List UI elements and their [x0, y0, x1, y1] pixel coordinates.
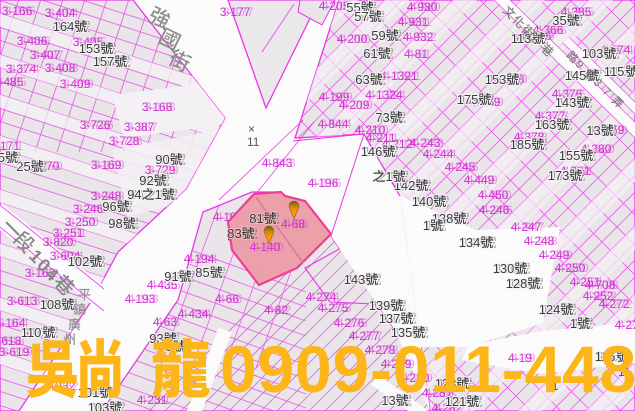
svg-text:73: 73 — [375, 110, 389, 125]
svg-text:81: 81 — [249, 211, 263, 226]
svg-text:11: 11 — [247, 135, 260, 149]
svg-text:4-248: 4-248 — [524, 234, 555, 248]
svg-text:3-169: 3-169 — [91, 158, 122, 172]
svg-text:4-273: 4-273 — [615, 318, 635, 332]
svg-text:3-166: 3-166 — [2, 4, 33, 18]
svg-text:4-246: 4-246 — [479, 203, 510, 217]
svg-text:175: 175 — [457, 92, 479, 107]
svg-text:4-68: 4-68 — [281, 217, 305, 231]
svg-text:4-250: 4-250 — [555, 261, 586, 275]
svg-text:3-485: 3-485 — [0, 75, 24, 89]
svg-text:3-820: 3-820 — [43, 235, 74, 249]
svg-text:4-434: 4-434 — [178, 307, 209, 321]
svg-text:3-387: 3-387 — [124, 120, 155, 134]
svg-text:4-200: 4-200 — [337, 32, 368, 46]
svg-text:115: 115 — [604, 64, 625, 79]
svg-text:4-249: 4-249 — [539, 248, 570, 262]
svg-text:3-177: 3-177 — [220, 5, 251, 19]
svg-text:4-193: 4-193 — [125, 292, 156, 306]
svg-text:4-194: 4-194 — [184, 252, 215, 266]
svg-text:3-406: 3-406 — [17, 34, 48, 48]
svg-text:4-205: 4-205 — [319, 0, 350, 13]
svg-text:103: 103 — [582, 46, 604, 61]
svg-text:4-449: 4-449 — [464, 173, 495, 187]
svg-text:4-140: 4-140 — [250, 240, 281, 254]
svg-text:4-82: 4-82 — [264, 303, 288, 317]
svg-text:3-613: 3-613 — [7, 294, 38, 308]
svg-text:140: 140 — [412, 194, 434, 209]
svg-text:1: 1 — [155, 187, 162, 202]
svg-text:96: 96 — [102, 199, 116, 214]
svg-text:134: 134 — [459, 235, 481, 250]
svg-text:3-374: 3-374 — [6, 62, 37, 76]
svg-text:3-168: 3-168 — [142, 100, 173, 114]
svg-text:4-844: 4-844 — [318, 117, 349, 131]
svg-text:3-246: 3-246 — [73, 202, 104, 216]
svg-text:3-407: 3-407 — [30, 48, 61, 62]
svg-text:4-275: 4-275 — [318, 301, 349, 315]
svg-text:130: 130 — [493, 261, 515, 276]
svg-text:3-726: 3-726 — [80, 118, 111, 132]
svg-text:145: 145 — [565, 68, 587, 83]
svg-text:153: 153 — [485, 72, 507, 87]
svg-text:×: × — [248, 122, 255, 136]
svg-text:102: 102 — [68, 254, 90, 269]
svg-text:4-272: 4-272 — [599, 297, 630, 311]
svg-text:90: 90 — [155, 152, 169, 167]
svg-text:3-618: 3-618 — [0, 334, 22, 348]
svg-text:5: 5 — [0, 150, 5, 165]
svg-text:4-450: 4-450 — [478, 188, 509, 202]
svg-text:157: 157 — [93, 54, 115, 69]
svg-text:4-245: 4-245 — [445, 160, 476, 174]
svg-text:92: 92 — [139, 173, 153, 188]
svg-text:85: 85 — [195, 265, 209, 280]
svg-text:124: 124 — [539, 302, 561, 317]
svg-text:3-409: 3-409 — [60, 77, 91, 91]
svg-text:0909-011-448: 0909-011-448 — [220, 332, 635, 406]
svg-text:91: 91 — [164, 269, 178, 284]
svg-text:4-932: 4-932 — [403, 30, 434, 44]
svg-text:4-196: 4-196 — [308, 176, 339, 190]
svg-text:1: 1 — [423, 218, 430, 233]
svg-text:4-931: 4-931 — [398, 15, 429, 29]
svg-text:4-66: 4-66 — [215, 292, 239, 306]
svg-text:128: 128 — [506, 276, 528, 291]
svg-text:110: 110 — [21, 325, 42, 340]
svg-text:4-63: 4-63 — [153, 315, 177, 329]
svg-text:155: 155 — [559, 148, 581, 163]
svg-text:137: 137 — [379, 311, 401, 326]
svg-text:57: 57 — [354, 9, 368, 24]
svg-text:1: 1 — [385, 169, 392, 184]
svg-text:4-930: 4-930 — [407, 0, 438, 14]
svg-text:4-276: 4-276 — [334, 316, 365, 330]
svg-text:4-209: 4-209 — [339, 98, 370, 112]
svg-text:4-231: 4-231 — [137, 393, 168, 407]
svg-text:61: 61 — [363, 46, 377, 61]
svg-text:108: 108 — [40, 297, 62, 312]
svg-text:3-404: 3-404 — [45, 6, 76, 20]
svg-text:4-244: 4-244 — [423, 147, 454, 161]
svg-text:35: 35 — [552, 13, 566, 28]
svg-text:4-81: 4-81 — [404, 47, 428, 61]
svg-text:4-247: 4-247 — [511, 220, 542, 234]
svg-text:83: 83 — [227, 226, 241, 241]
svg-text:4-843: 4-843 — [262, 156, 293, 170]
svg-text:185: 185 — [510, 137, 532, 152]
svg-text:98: 98 — [108, 216, 122, 231]
svg-text:1: 1 — [570, 316, 577, 331]
svg-text:173: 173 — [548, 168, 570, 183]
svg-text:63: 63 — [355, 72, 369, 87]
svg-text:146: 146 — [361, 144, 383, 159]
svg-text:143: 143 — [344, 272, 366, 287]
svg-text:143: 143 — [555, 95, 577, 110]
svg-text:163: 163 — [535, 117, 557, 132]
svg-text:103: 103 — [88, 400, 110, 411]
svg-text:59: 59 — [371, 28, 385, 43]
svg-text:164: 164 — [53, 19, 75, 34]
svg-text:3-408: 3-408 — [45, 61, 76, 75]
svg-text:13: 13 — [586, 123, 600, 138]
svg-text:3-728: 3-728 — [109, 134, 140, 148]
